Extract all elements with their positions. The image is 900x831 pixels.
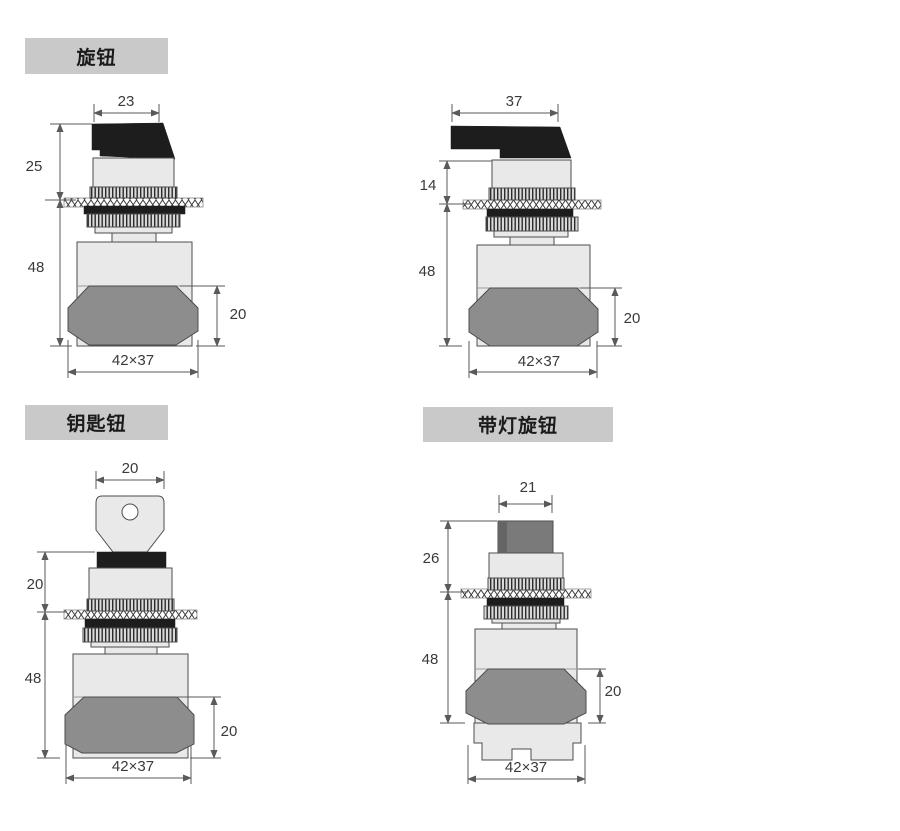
lock-ring bbox=[487, 598, 564, 606]
dim-upper-height-value: 26 bbox=[423, 550, 440, 567]
knob-base bbox=[492, 160, 571, 188]
figure-knob-long: 37 14 48 20 4 bbox=[419, 93, 641, 378]
knurl-ring-lower bbox=[87, 214, 180, 227]
knurl-ring-upper bbox=[90, 187, 177, 198]
rubber-boot bbox=[68, 286, 198, 345]
figure-knob-short: 23 25 48 20 4 bbox=[26, 93, 247, 378]
dim-upper-height: 26 bbox=[423, 521, 497, 592]
rubber-boot bbox=[65, 697, 194, 753]
knob-base bbox=[489, 553, 563, 578]
knob-cap-side bbox=[499, 522, 507, 552]
lock-ring bbox=[487, 209, 573, 217]
figure-key-button: 20 20 48 20 4 bbox=[25, 460, 238, 784]
knurl-ring-lower bbox=[83, 628, 177, 642]
dim-upper-height-value: 14 bbox=[420, 177, 437, 194]
dim-body-height: 48 bbox=[422, 592, 465, 723]
lock-ring bbox=[84, 206, 185, 214]
dim-top-width: 20 bbox=[96, 460, 164, 489]
figure-illuminated-knob: 21 26 48 20 4 bbox=[422, 479, 622, 784]
dim-boot-height-value: 20 bbox=[230, 306, 247, 323]
dim-top-width-value: 20 bbox=[122, 460, 139, 477]
dim-mount-size: 42×37 bbox=[469, 341, 597, 378]
collar-step bbox=[492, 619, 560, 623]
knurl-ring-upper bbox=[488, 578, 564, 590]
knob-handle bbox=[92, 123, 175, 159]
knob-base bbox=[93, 158, 174, 187]
dim-mount-size-value: 42×37 bbox=[505, 759, 547, 776]
dim-boot-height-value: 20 bbox=[221, 723, 238, 740]
dim-boot-height-value: 20 bbox=[624, 310, 641, 327]
knurl-ring-lower bbox=[484, 606, 568, 619]
dim-body-height-value: 48 bbox=[422, 651, 439, 668]
dim-body-height: 48 bbox=[28, 200, 72, 346]
panel-gasket bbox=[463, 200, 601, 209]
knurl-ring-upper bbox=[87, 599, 174, 611]
key-hole bbox=[122, 504, 138, 520]
rubber-boot bbox=[466, 669, 586, 724]
dim-upper-height: 20 bbox=[27, 552, 95, 612]
dim-upper-height: 25 bbox=[26, 124, 92, 200]
dim-top-width: 23 bbox=[94, 93, 159, 122]
dim-body-height: 48 bbox=[25, 612, 60, 758]
dim-upper-height-value: 20 bbox=[27, 576, 44, 593]
neck bbox=[105, 647, 157, 654]
dim-body-height-value: 48 bbox=[28, 259, 45, 276]
dim-top-width-value: 37 bbox=[506, 93, 523, 110]
lever-handle bbox=[451, 126, 571, 158]
lock-ring bbox=[85, 619, 175, 628]
dim-top-width-value: 21 bbox=[520, 479, 537, 496]
dim-body-height: 48 bbox=[419, 204, 462, 346]
lamp-socket bbox=[474, 723, 581, 760]
panel-gasket bbox=[64, 198, 203, 207]
dim-body-height-value: 48 bbox=[419, 263, 436, 280]
dim-upper-height-value: 25 bbox=[26, 158, 43, 175]
neck bbox=[112, 233, 156, 242]
dim-upper-height: 14 bbox=[420, 161, 492, 204]
key-collar bbox=[97, 552, 166, 568]
rubber-boot bbox=[469, 288, 598, 346]
dim-mount-size-value: 42×37 bbox=[112, 758, 154, 775]
knurl-ring-upper bbox=[489, 188, 575, 200]
collar-step bbox=[494, 231, 568, 237]
dimension-drawing-sheet: 旋钮 钥匙钮 带灯旋钮 bbox=[0, 0, 900, 831]
dim-body-height-value: 48 bbox=[25, 670, 42, 687]
collar-step bbox=[95, 227, 172, 233]
knob-base bbox=[89, 568, 172, 599]
dim-top-width: 37 bbox=[452, 93, 558, 122]
neck bbox=[502, 623, 556, 629]
dim-boot-height-value: 20 bbox=[605, 683, 622, 700]
dim-top-width-value: 23 bbox=[118, 93, 135, 110]
drawings: 23 25 48 20 4 bbox=[0, 0, 900, 831]
dim-mount-size-value: 42×37 bbox=[518, 353, 560, 370]
dim-mount-size-value: 42×37 bbox=[112, 352, 154, 369]
collar-step bbox=[91, 642, 169, 647]
dim-top-width: 21 bbox=[499, 479, 552, 513]
neck bbox=[510, 237, 554, 245]
knurl-ring-lower bbox=[486, 217, 578, 231]
